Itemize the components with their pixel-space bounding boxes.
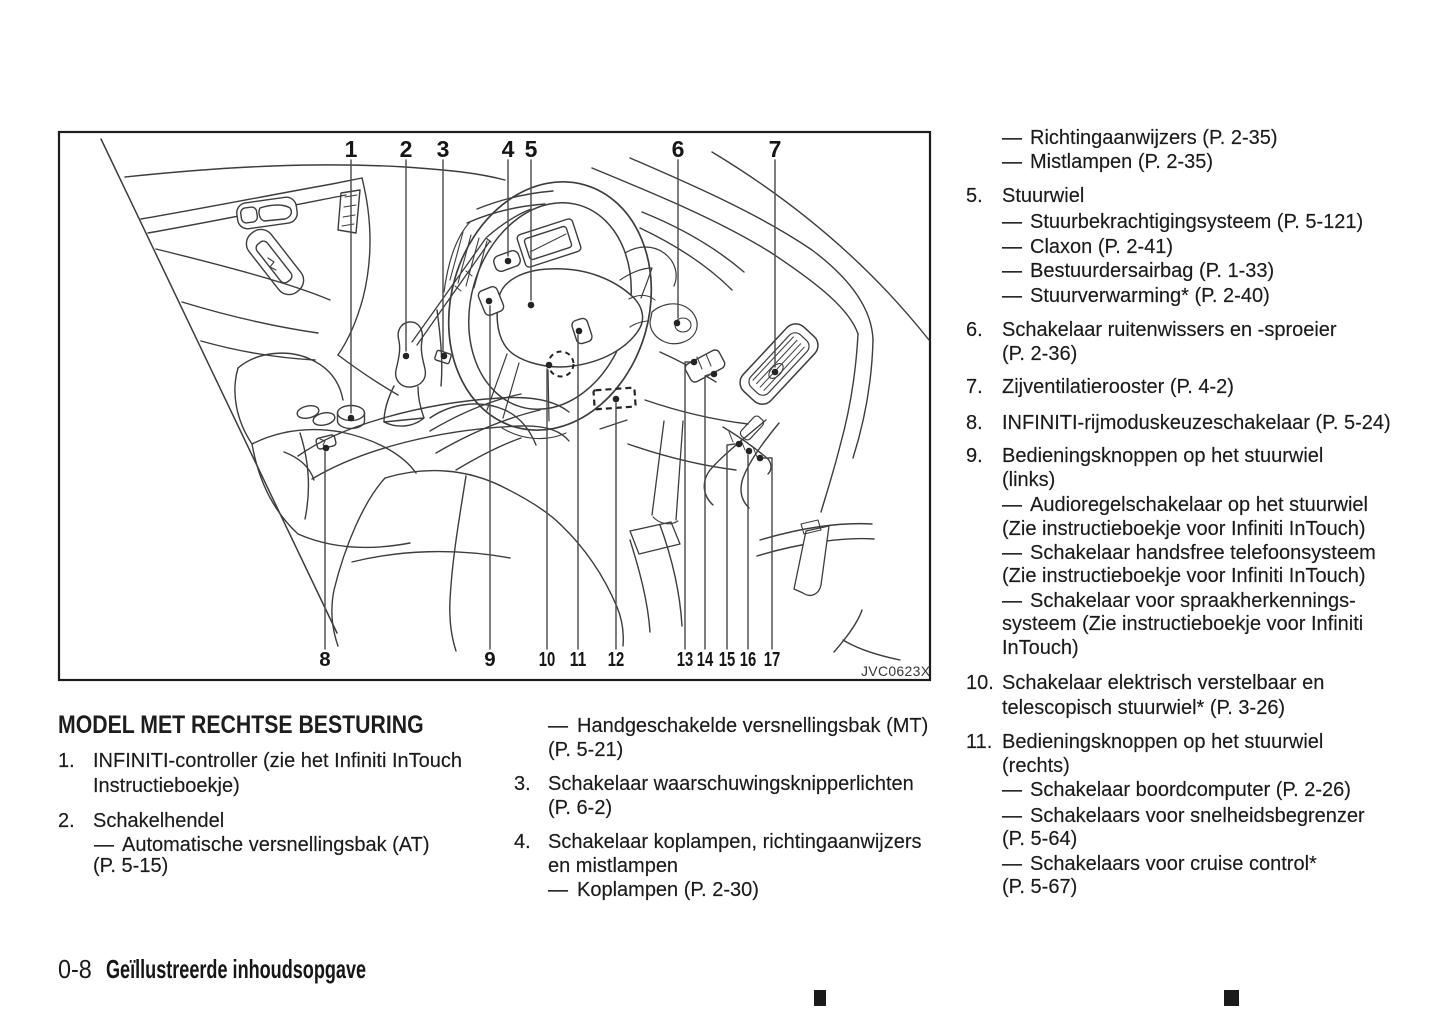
svg-text:12: 12 (608, 648, 625, 671)
svg-text:10: 10 (539, 648, 556, 671)
svg-text:6: 6 (672, 136, 685, 162)
svg-text:15: 15 (719, 648, 736, 671)
svg-text:17: 17 (764, 648, 781, 671)
svg-text:9: 9 (484, 648, 495, 671)
svg-text:1: 1 (345, 136, 358, 162)
svg-text:8: 8 (319, 648, 330, 671)
svg-text:3: 3 (437, 136, 450, 162)
svg-text:2: 2 (400, 136, 413, 162)
svg-text:16: 16 (740, 648, 757, 671)
svg-text:14: 14 (697, 648, 714, 671)
svg-text:13: 13 (677, 648, 694, 671)
svg-text:11: 11 (570, 648, 587, 671)
svg-text:5: 5 (525, 136, 538, 162)
svg-text:7: 7 (769, 136, 782, 162)
svg-text:4: 4 (502, 136, 515, 162)
